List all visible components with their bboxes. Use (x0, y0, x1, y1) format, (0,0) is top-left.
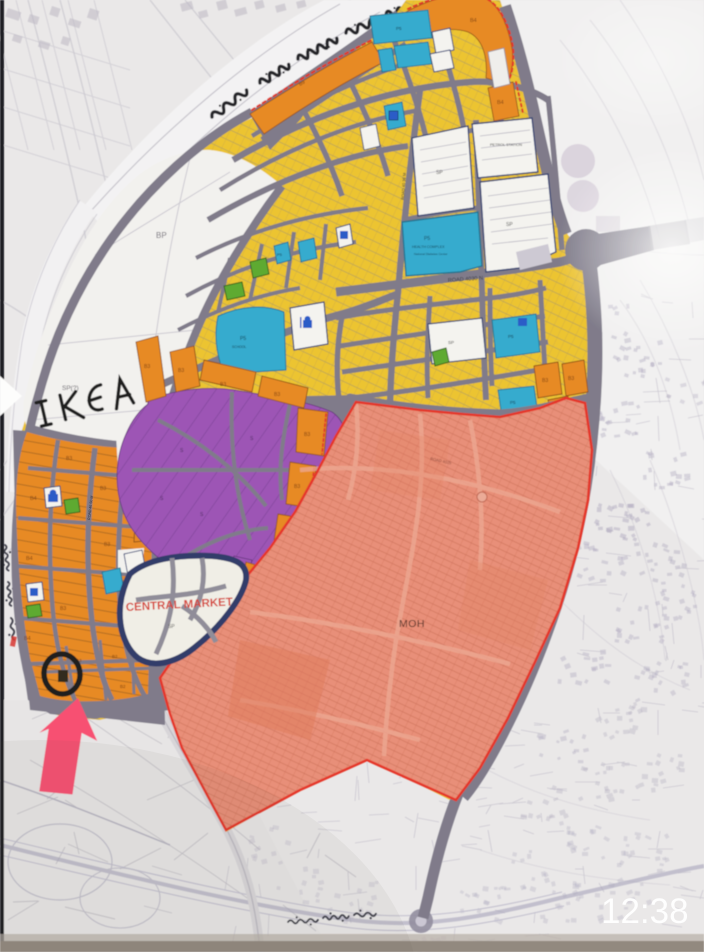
svg-text:12:38: 12:38 (601, 892, 689, 931)
